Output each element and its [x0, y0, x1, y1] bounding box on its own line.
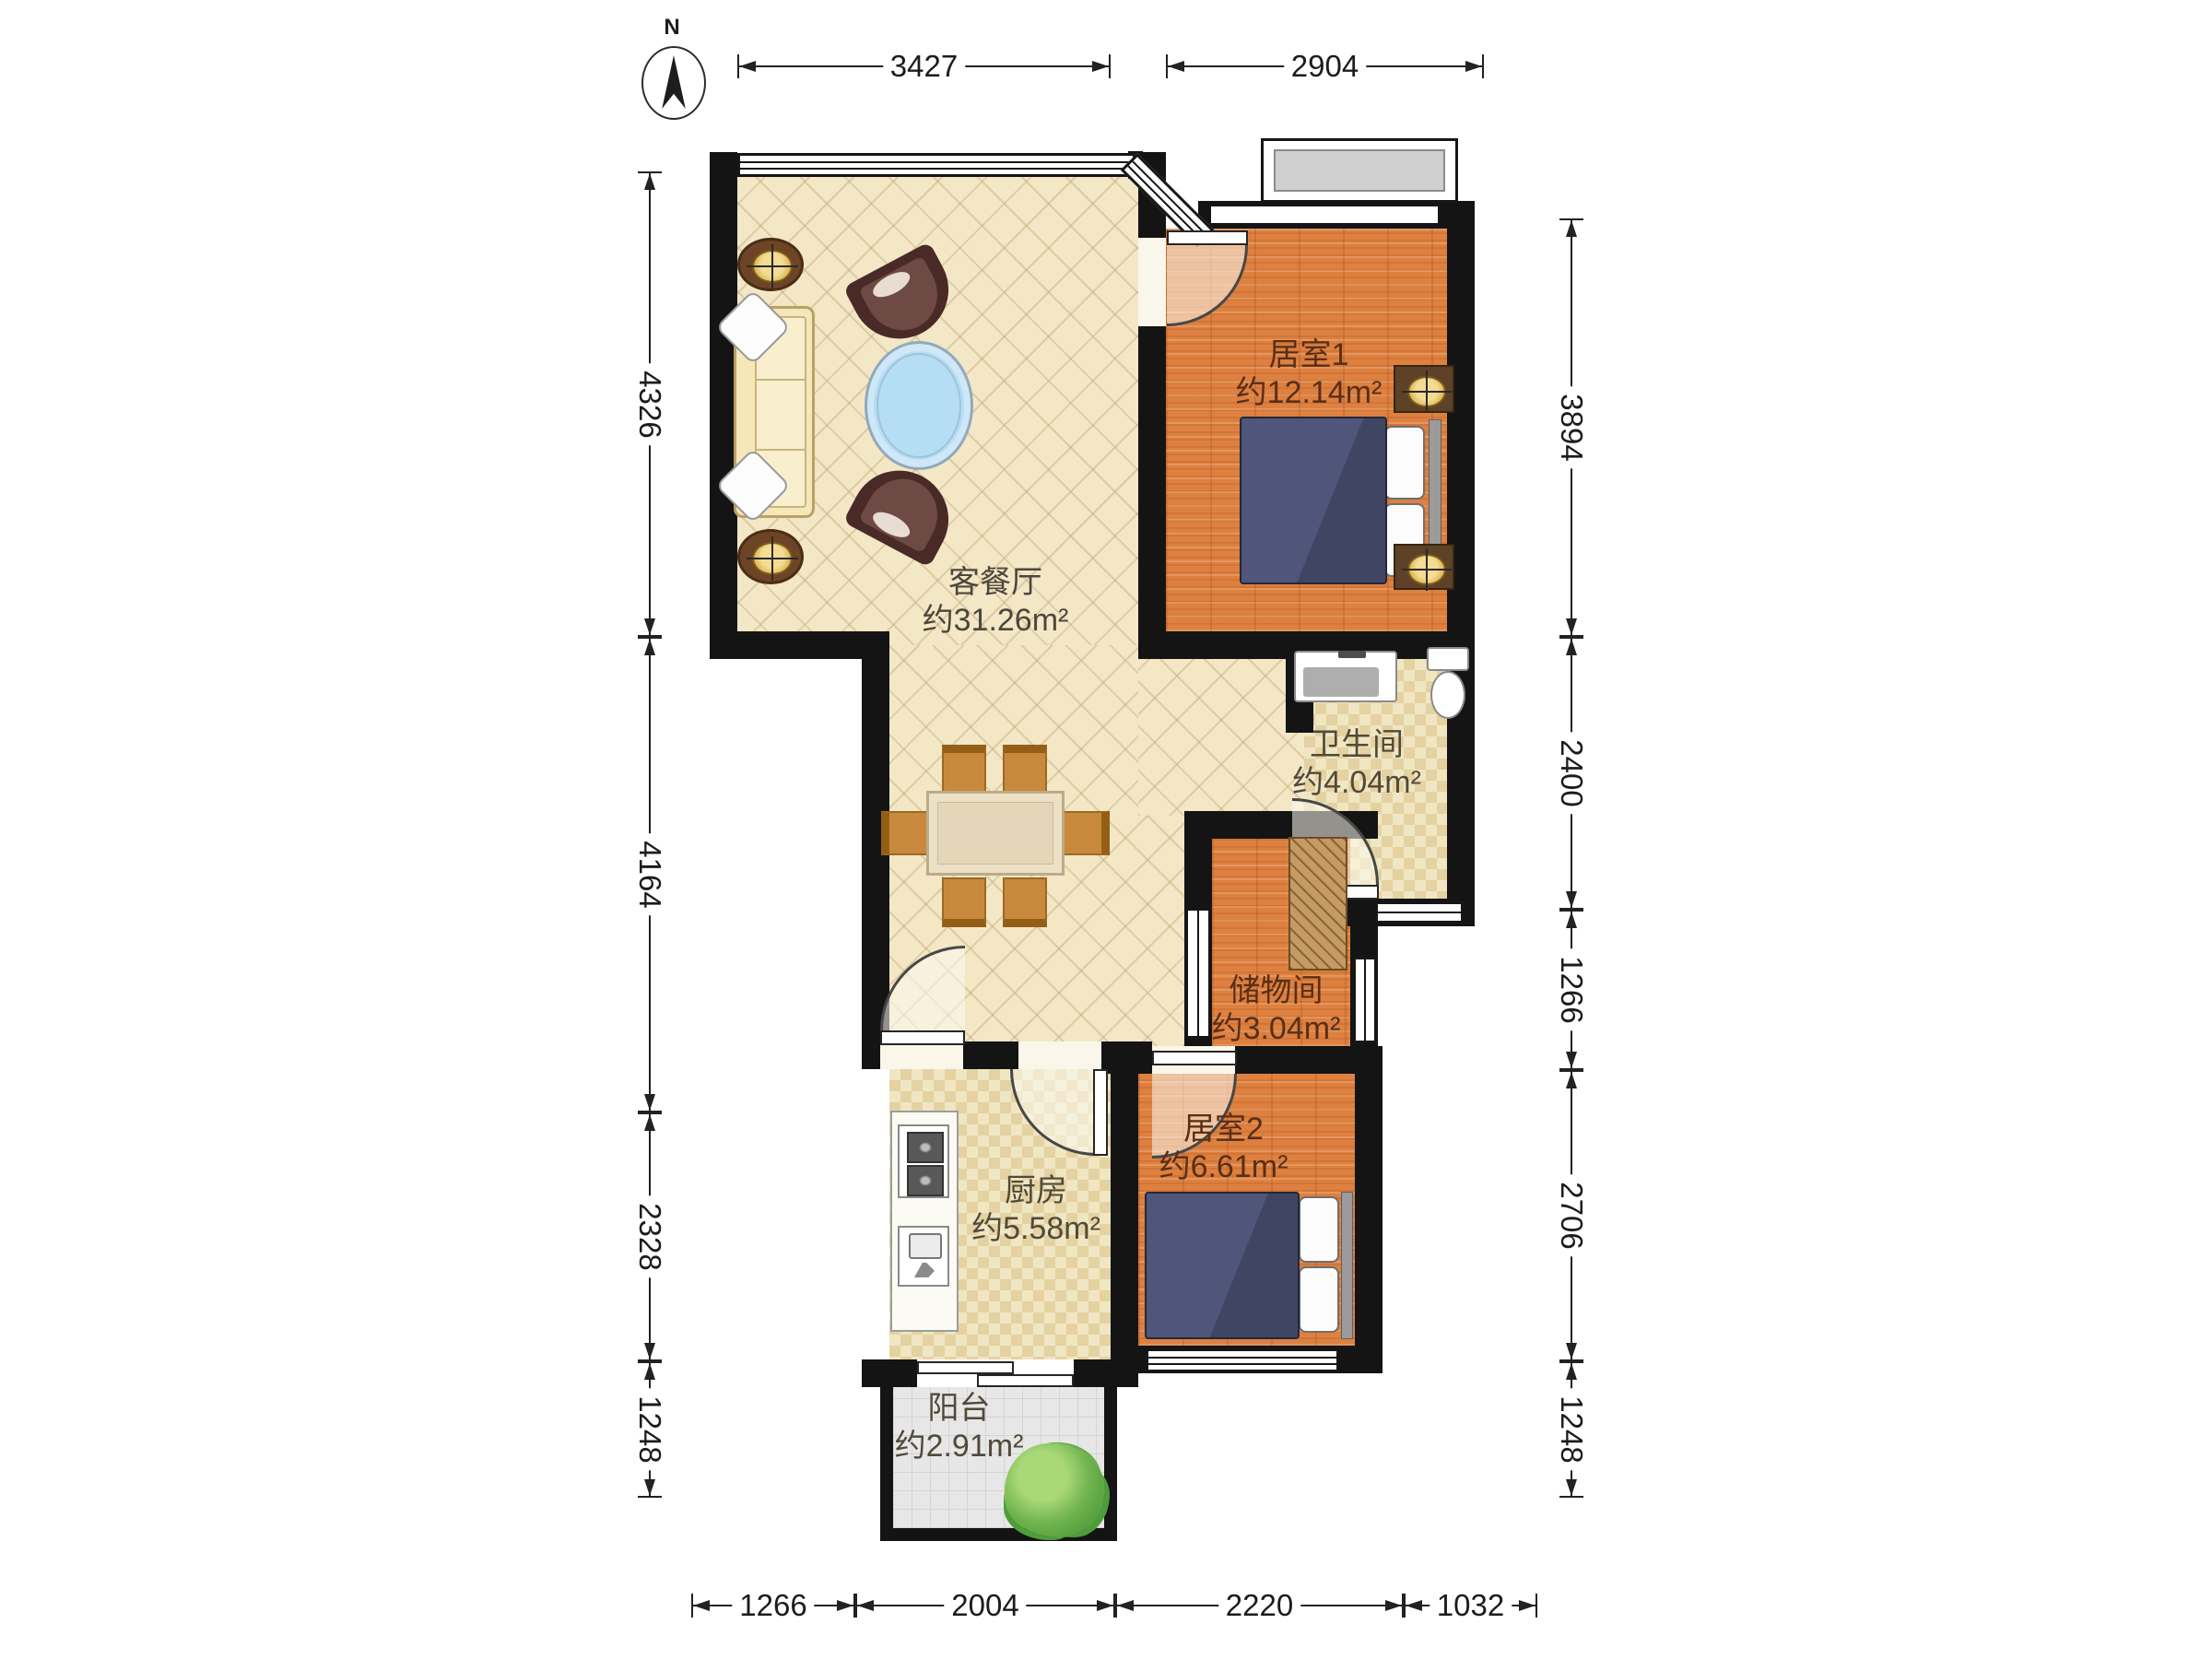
dimension-left-3: 2328: [638, 1112, 662, 1361]
kitchen-door-opening: [1018, 1041, 1101, 1069]
room-area: 约4.04m²: [1287, 764, 1427, 802]
dimension-value: 1248: [630, 1388, 669, 1470]
room-name: 储物间: [1209, 972, 1343, 1010]
nightstand: [1394, 365, 1454, 413]
bed-pillow: [1299, 1196, 1339, 1263]
dimension-value: 1032: [1430, 1586, 1512, 1625]
dimension-value: 2328: [630, 1195, 669, 1277]
dimension-right-4: 2706: [1559, 1070, 1583, 1361]
sink-bowl: [909, 1233, 942, 1259]
dimension-value: 4164: [630, 833, 669, 915]
sofa-divider: [755, 379, 806, 381]
dimension-right-1: 3894: [1559, 218, 1583, 637]
compass-icon: [641, 46, 706, 120]
dimension-right-2: 2400: [1559, 637, 1583, 910]
kitchen-door-leaf: [1093, 1069, 1108, 1156]
bedroom1-bed-duvet: [1240, 417, 1387, 584]
dimension-left-1: 4326: [638, 171, 662, 637]
dimension-left-2: 4164: [638, 637, 662, 1112]
dimension-value: 1266: [732, 1586, 814, 1625]
kitchen-sink: [898, 1226, 949, 1287]
dimension-value: 2220: [1218, 1586, 1300, 1625]
room-area: 约2.91m²: [892, 1428, 1026, 1465]
bay-window-glass: [1274, 149, 1445, 192]
dimension-value: 2706: [1552, 1174, 1591, 1256]
room-label-balcony: 阳台 约2.91m²: [892, 1390, 1026, 1465]
room-area: 约6.61m²: [1152, 1148, 1295, 1186]
table-lamp-icon: [752, 542, 793, 575]
wall-balcony-right: [1104, 1387, 1117, 1539]
room-area: 约31.26m²: [903, 602, 1088, 640]
bed-headboard: [1341, 1192, 1353, 1339]
bed-pillow: [1384, 426, 1425, 500]
room-area: 约5.58m²: [966, 1210, 1106, 1248]
room-name: 居室2: [1152, 1111, 1295, 1148]
dimension-value: 1248: [1552, 1388, 1591, 1470]
stove: [898, 1124, 949, 1198]
table-lamp-icon: [1407, 376, 1446, 407]
bedroom1-door-leaf: [1167, 230, 1248, 245]
wall-hall-bottom-a: [862, 1041, 880, 1069]
wall-balcony-left: [880, 1387, 893, 1539]
room-name: 客餐厅: [903, 564, 1088, 602]
dining-chair: [942, 877, 986, 927]
dining-chair: [1060, 811, 1110, 855]
bed-pillow: [1299, 1266, 1339, 1333]
entry-door-opening: [880, 1041, 963, 1069]
coffee-table: [865, 341, 973, 470]
side-table: [737, 529, 804, 584]
room-label-bedroom1: 居室1 约12.14m²: [1226, 336, 1392, 412]
dimension-bottom-3: 2220: [1115, 1594, 1404, 1618]
dimension-value: 2904: [1284, 47, 1366, 86]
room-label-storage: 储物间 约3.04m²: [1209, 972, 1343, 1048]
dining-chair: [1003, 745, 1047, 794]
dimension-right-5: 1248: [1559, 1361, 1583, 1498]
wall-bedroom2-right: [1355, 1046, 1382, 1373]
dimension-bottom-4: 1032: [1404, 1594, 1537, 1618]
dimension-value: 2004: [944, 1586, 1026, 1625]
dimension-value: 2400: [1552, 732, 1591, 814]
wall-living-bedroom1: [1138, 152, 1166, 659]
bathroom-sink: [1294, 651, 1397, 702]
compass-needle-icon: [655, 55, 692, 109]
toilet-bowl: [1430, 671, 1465, 719]
dining-chair: [881, 811, 931, 855]
dining-table-top: [937, 802, 1053, 865]
room-name: 阳台: [892, 1390, 1026, 1428]
dimension-right-3: 1266: [1559, 910, 1583, 1070]
room-label-bedroom2: 居室2 约6.61m²: [1152, 1111, 1295, 1186]
dimension-top-1: 3427: [737, 54, 1111, 78]
dimension-value: 1266: [1552, 948, 1591, 1030]
dimension-value: 4326: [630, 363, 669, 445]
dimension-left-4: 1248: [638, 1361, 662, 1498]
bathroom-window: [1375, 901, 1464, 924]
room-name: 居室1: [1226, 336, 1392, 374]
stove-burner-icon: [907, 1165, 944, 1196]
wall-kitchen-bottom-right: [1074, 1359, 1138, 1387]
bedroom1-door-opening: [1138, 238, 1166, 326]
sink-faucet-icon: [914, 1263, 935, 1277]
wall-hall-bottom-b: [963, 1041, 1018, 1069]
sink-basin: [1303, 667, 1379, 697]
floorplan-canvas: N: [0, 0, 2212, 1659]
dimension-bottom-2: 2004: [855, 1594, 1115, 1618]
dining-table: [926, 791, 1065, 876]
bedroom2-bed-duvet: [1145, 1192, 1300, 1339]
entry-door-leaf: [880, 1030, 965, 1045]
balcony-sliding-door-panel2: [977, 1374, 1074, 1387]
wardrobe: [1288, 837, 1347, 971]
bedroom1-top-window: [1209, 205, 1440, 225]
dimension-value: 3894: [1552, 386, 1591, 468]
room-label-kitchen: 厨房 约5.58m²: [966, 1172, 1106, 1248]
dimension-bottom-1: 1266: [691, 1594, 855, 1618]
bedroom2-window: [1146, 1348, 1339, 1372]
dining-chair: [942, 745, 986, 794]
dining-chair: [1003, 877, 1047, 927]
stove-burner-icon: [907, 1132, 944, 1163]
table-lamp-icon: [752, 250, 793, 283]
living-room-top-window: [737, 153, 1135, 177]
wall-kitchen-bedroom2: [1111, 1041, 1138, 1373]
coffee-table-glass: [877, 353, 961, 458]
corridor-floor: [1138, 659, 1304, 816]
room-name: 厨房: [966, 1172, 1106, 1210]
dimension-value: 3427: [883, 47, 965, 86]
side-table: [737, 238, 804, 291]
dimension-top-2: 2904: [1166, 54, 1484, 78]
room-label-living: 客餐厅 约31.26m²: [903, 564, 1088, 640]
toilet-tank: [1427, 647, 1469, 671]
nightstand: [1394, 544, 1454, 590]
storage-right-window: [1353, 957, 1377, 1043]
bedroom2-door-leaf: [1152, 1051, 1237, 1065]
sink-faucet-icon: [1338, 651, 1366, 658]
room-label-bathroom: 卫生间 约4.04m²: [1287, 726, 1427, 802]
room-area: 约12.14m²: [1226, 374, 1392, 412]
room-area: 约3.04m²: [1209, 1010, 1343, 1048]
compass-north-label: N: [641, 15, 702, 41]
balcony-sliding-door-panel1: [917, 1361, 1014, 1374]
sofa-divider: [755, 449, 806, 451]
table-lamp-icon: [1407, 554, 1446, 585]
wall-kitchen-bottom-left: [862, 1359, 917, 1387]
storage-sliding-door: [1185, 908, 1211, 1039]
room-name: 卫生间: [1287, 726, 1427, 764]
